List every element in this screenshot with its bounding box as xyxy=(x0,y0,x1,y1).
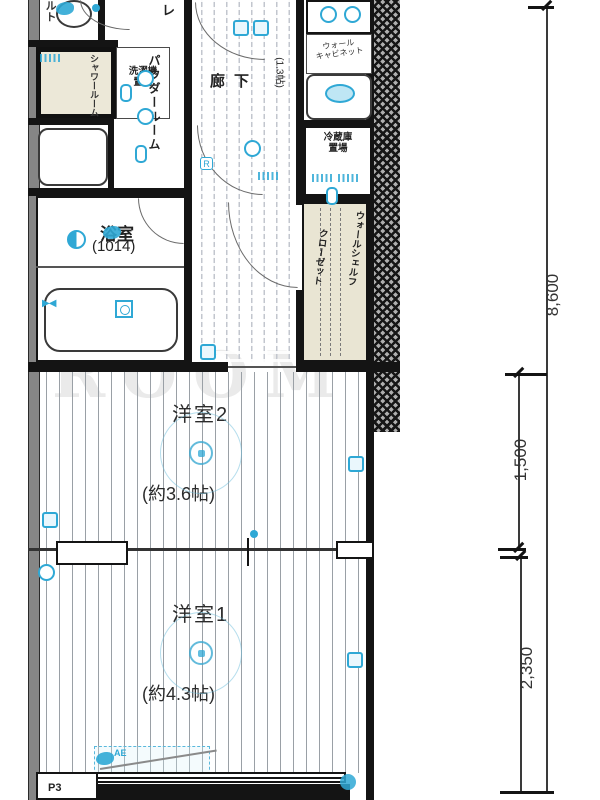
switch-square-icon xyxy=(200,344,216,360)
dim-line-total xyxy=(546,6,548,794)
toilet-label-fragment: レ xyxy=(162,0,175,19)
drain-square-icon xyxy=(115,300,133,318)
bathtub xyxy=(44,288,178,352)
faucet-icon xyxy=(42,293,55,311)
wall-west2-top-left xyxy=(28,362,228,372)
dim-lower-label: 2,350 xyxy=(517,613,537,723)
light-ring-icon xyxy=(244,140,261,157)
ac-label: AE xyxy=(114,748,127,758)
sliding-door-track xyxy=(228,366,296,368)
outlet-dot-icon xyxy=(92,4,100,12)
dim-tick-upper-top xyxy=(505,373,547,376)
outlet-tag-icon xyxy=(40,54,62,62)
divider-center-tick xyxy=(247,538,249,566)
shower-label: シャワールーム xyxy=(88,54,101,117)
ceiling-light-center xyxy=(198,450,205,457)
p3-box xyxy=(36,772,98,800)
wall-under-shower xyxy=(28,118,114,125)
r-symbol-icon: R xyxy=(200,157,213,170)
stove-unit xyxy=(306,0,372,34)
sink-oval-icon xyxy=(325,84,355,103)
fridge-line1: 冷蔵庫 xyxy=(324,132,353,143)
half-light-icon xyxy=(67,230,86,249)
washbasin-counter xyxy=(38,128,108,186)
wall-west2-top-right xyxy=(296,362,400,372)
switch-square-icon xyxy=(348,456,364,472)
fridge-line2: 置場 xyxy=(328,143,347,154)
light-ring-icon xyxy=(137,108,154,125)
wall-outlet-icon xyxy=(326,187,338,205)
switch-square-icon xyxy=(253,20,269,36)
wall-powder-washbasin xyxy=(108,120,114,196)
toilet-door-arc xyxy=(80,0,130,30)
dim-upper-label: 1,500 xyxy=(511,405,531,515)
closet-dash-2 xyxy=(330,208,331,356)
switch-square-icon xyxy=(42,512,58,528)
bath-size: (1014) xyxy=(92,238,135,255)
wall-bottom xyxy=(96,784,350,800)
fridge-label: 冷蔵庫 置場 xyxy=(306,132,370,154)
wall-bath-top xyxy=(28,188,188,196)
wall-outlet-icon xyxy=(135,145,147,163)
p3-label: P3 xyxy=(48,782,61,794)
window-midline xyxy=(98,777,344,779)
outlet-tag-icon xyxy=(312,174,334,182)
switch-square-icon xyxy=(347,652,363,668)
wall-corridor-left xyxy=(184,0,192,362)
light-ring-icon xyxy=(344,6,361,23)
outlet-tag-icon xyxy=(338,174,360,182)
ceiling-light-center xyxy=(198,650,205,657)
ceiling-light-icon xyxy=(160,612,242,694)
dim-tick-lower-bottom xyxy=(500,791,528,794)
light-ring-icon xyxy=(320,6,337,23)
dim-tick-total-bottom xyxy=(528,791,554,794)
switch-square-icon xyxy=(233,20,249,36)
corridor-size-label: (1.3帖) xyxy=(274,30,289,116)
corridor-label: 廊下 xyxy=(210,70,258,91)
light-ring-icon xyxy=(137,70,154,87)
outlet-dot-icon xyxy=(250,530,258,538)
light-ring-icon xyxy=(38,564,55,581)
bath-partition-line xyxy=(36,266,186,268)
divider-step-right xyxy=(336,541,374,559)
divider-step-left xyxy=(56,541,128,565)
wall-outlet-icon xyxy=(120,84,132,102)
outlet-dot-icon xyxy=(340,774,356,790)
floorplan-page: ROOM ルト レ シャワールーム 洗濯機 置場 パウダールーム 浴室 (101… xyxy=(0,0,600,800)
wall-corridor-right-upper xyxy=(296,0,304,205)
dim-total-label: 8,600 xyxy=(543,240,563,350)
outlet-tag-icon xyxy=(258,172,280,180)
wall-toilet-bottom xyxy=(28,40,118,47)
ceiling-light-icon xyxy=(160,412,242,494)
